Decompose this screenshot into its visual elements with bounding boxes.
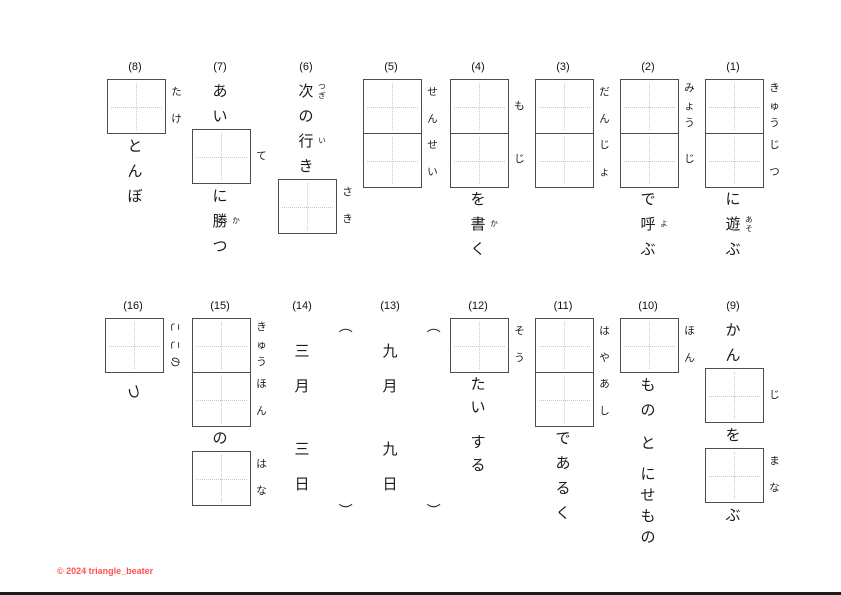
problem-number: (4) xyxy=(454,61,502,73)
kanji-writing-box[interactable] xyxy=(450,79,509,188)
kanji-writing-cell[interactable] xyxy=(536,80,593,133)
problem-text-char: に xyxy=(721,187,746,212)
problem-text-char: ぶ xyxy=(636,237,661,262)
furigana-reading: ょ xyxy=(597,166,613,178)
kanji-writing-box[interactable] xyxy=(363,79,422,188)
problem-text-char: 勝 xyxy=(208,209,233,234)
problem-number: (14) xyxy=(278,300,326,312)
problem-text-char: 月 xyxy=(290,369,315,404)
kanji-writing-box[interactable] xyxy=(450,318,509,373)
problem-number: (3) xyxy=(539,61,587,73)
furigana-reading: み xyxy=(682,82,698,94)
kanji-writing-box[interactable] xyxy=(535,79,594,188)
problem-text-char: も xyxy=(636,373,661,398)
furigana-reading: た xyxy=(169,86,185,98)
furigana-reading: も xyxy=(512,100,528,112)
furigana-ruby: つぎ xyxy=(317,79,327,104)
kanji-writing-cell[interactable] xyxy=(193,372,250,426)
problem-text-char: 三 xyxy=(290,334,315,369)
problem-text-char: る xyxy=(466,454,491,477)
furigana-reading: ょ xyxy=(682,100,698,112)
problem-text-char: に xyxy=(208,184,233,209)
furigana-ruby: い xyxy=(317,129,327,154)
problem-text-char: あ xyxy=(551,451,576,476)
kanji-writing-box[interactable] xyxy=(705,448,764,503)
problem-text-char: ん xyxy=(123,159,148,184)
kanji-writing-box[interactable] xyxy=(535,318,594,427)
worksheet-page: (1)きゅうじつに遊あそぶ(2)みょうじで呼よぶ(3)だんじょ(4)もじを書かく… xyxy=(0,0,841,595)
furigana-reading: ゅ xyxy=(254,339,270,351)
problem-text-char: と xyxy=(636,431,661,456)
problem-number: (5) xyxy=(367,61,415,73)
problem-number: (7) xyxy=(196,61,244,73)
problem-text-char: の xyxy=(208,426,233,451)
problem-text-char: と xyxy=(123,134,148,159)
problem-text-char: 呼 xyxy=(636,212,661,237)
kanji-writing-cell[interactable] xyxy=(106,319,163,372)
problem-text-char: 書 xyxy=(466,212,491,237)
furigana-reading: じ xyxy=(597,139,613,151)
kanji-writing-cell[interactable] xyxy=(536,372,593,426)
problem-text-char: の xyxy=(636,527,661,548)
problem-text-char: 日 xyxy=(290,467,315,502)
furigana-reading: そ xyxy=(512,325,528,337)
kanji-writing-box[interactable] xyxy=(192,318,251,427)
kanji-writing-cell[interactable] xyxy=(108,80,165,133)
problem-text-char: も xyxy=(636,506,661,527)
furigana-ruby: よ xyxy=(659,212,669,237)
furigana-reading: け xyxy=(169,113,185,125)
kanji-writing-box[interactable] xyxy=(192,451,251,506)
problem-text-char: 三 xyxy=(290,432,315,467)
kanji-writing-box[interactable] xyxy=(192,129,251,184)
furigana-reading: や xyxy=(597,352,613,364)
problem-text-char: る xyxy=(551,476,576,501)
kanji-writing-cell[interactable] xyxy=(364,133,421,187)
furigana-ruby: か xyxy=(231,209,241,234)
close-paren: ） xyxy=(336,503,352,517)
problem-text-char: ん xyxy=(721,343,746,368)
kanji-writing-cell[interactable] xyxy=(364,80,421,133)
kanji-writing-cell[interactable] xyxy=(706,449,763,502)
problem-text-char: の xyxy=(294,104,319,129)
furigana-reading: い xyxy=(425,166,441,178)
furigana-reading: じ xyxy=(512,153,528,165)
problem-text-char: い xyxy=(208,104,233,129)
kanji-writing-box[interactable] xyxy=(105,318,164,373)
furigana-reading: う xyxy=(254,356,270,368)
furigana-reading: だ xyxy=(597,86,613,98)
problem-text-char: つ xyxy=(208,234,233,259)
close-paren: ） xyxy=(424,503,440,517)
furigana-reading: あ xyxy=(597,378,613,390)
problem-number: (13) xyxy=(366,300,414,312)
furigana-reading: ん xyxy=(597,113,613,125)
problem-text-char: く xyxy=(466,237,491,262)
furigana-reading: き xyxy=(254,321,270,333)
problem-text-char: か xyxy=(721,318,746,343)
problem-text-char: の xyxy=(636,398,661,423)
problem-text-char: 行 xyxy=(294,129,319,154)
furigana-reading: ほ xyxy=(682,325,698,337)
kanji-writing-box[interactable] xyxy=(107,79,166,134)
problem-number: (10) xyxy=(624,300,672,312)
problem-number: (12) xyxy=(454,300,502,312)
problem-text-char: で xyxy=(551,426,576,451)
furigana-reading: ゅ xyxy=(767,100,783,112)
furigana-reading: う xyxy=(682,117,698,129)
problem-number: (8) xyxy=(111,61,159,73)
problem-text-char: に xyxy=(636,464,661,485)
kanji-writing-cell[interactable] xyxy=(536,133,593,187)
furigana-ruby: か xyxy=(489,212,499,237)
problem-text-char: 九 xyxy=(378,334,403,369)
furigana-reading: て xyxy=(254,150,270,162)
problem-text-char: あ xyxy=(208,79,233,104)
furigana-reading: ん xyxy=(425,113,441,125)
problem-number: (1) xyxy=(709,61,757,73)
open-paren: （ xyxy=(424,319,440,333)
problem-number: (15) xyxy=(196,300,244,312)
kanji-writing-cell[interactable] xyxy=(621,319,678,372)
problem-text-char: く xyxy=(551,501,576,526)
furigana-reading: ん xyxy=(254,405,270,417)
furigana-reading: の xyxy=(169,354,181,370)
problem-text-char: 九 xyxy=(378,432,403,467)
problem-text-char: ぶ xyxy=(721,237,746,262)
kanji-writing-box[interactable] xyxy=(705,368,764,423)
kanji-writing-cell[interactable] xyxy=(193,130,250,183)
kanji-writing-cell[interactable] xyxy=(621,80,678,133)
furigana-ruby: あそ xyxy=(744,212,754,237)
problem-text-char: い xyxy=(466,396,491,419)
furigana-reading: な xyxy=(254,485,270,497)
furigana-reading: き xyxy=(767,82,783,94)
problem-text-char: 月 xyxy=(378,369,403,404)
furigana-reading: な xyxy=(767,482,783,494)
open-paren: （ xyxy=(336,319,352,333)
problem-number: (9) xyxy=(709,300,757,312)
furigana-reading: き xyxy=(340,213,356,225)
problem-text-char: を xyxy=(466,187,491,212)
kanji-writing-box[interactable] xyxy=(620,318,679,373)
problem-text-char: ぼ xyxy=(123,184,148,209)
furigana-reading: は xyxy=(254,458,270,470)
problem-text-char: つ xyxy=(121,379,146,404)
kanji-writing-box[interactable] xyxy=(620,79,679,188)
problem-text-char: た xyxy=(466,373,491,396)
kanji-writing-cell[interactable] xyxy=(193,452,250,505)
kanji-writing-cell[interactable] xyxy=(706,80,763,133)
problem-number: (2) xyxy=(624,61,672,73)
kanji-writing-cell[interactable] xyxy=(193,319,250,372)
kanji-writing-cell[interactable] xyxy=(451,133,508,187)
kanji-writing-cell[interactable] xyxy=(621,133,678,187)
copyright-notice: © 2024 triangle_beater xyxy=(57,566,153,576)
problem-text-char: す xyxy=(466,431,491,454)
furigana-reading: じ xyxy=(767,389,783,401)
problem-number: (6) xyxy=(282,61,330,73)
furigana-reading: せ xyxy=(425,139,441,151)
kanji-writing-cell[interactable] xyxy=(451,319,508,372)
furigana-reading: は xyxy=(597,325,613,337)
kanji-writing-cell[interactable] xyxy=(706,369,763,422)
problem-text-char: 遊 xyxy=(721,212,746,237)
problem-text-char: 次 xyxy=(294,79,319,104)
problem-text-char: き xyxy=(294,154,319,179)
furigana-reading: せ xyxy=(425,86,441,98)
furigana-reading: さ xyxy=(340,186,356,198)
kanji-writing-cell[interactable] xyxy=(279,180,336,233)
furigana-reading: じ xyxy=(682,153,698,165)
furigana-reading: ま xyxy=(767,455,783,467)
problem-number: (16) xyxy=(109,300,157,312)
kanji-writing-cell[interactable] xyxy=(706,133,763,187)
furigana-reading: し xyxy=(597,405,613,417)
furigana-reading: ほ xyxy=(254,378,270,390)
furigana-reading: つ xyxy=(767,166,783,178)
problem-text-char: で xyxy=(636,187,661,212)
kanji-writing-cell[interactable] xyxy=(451,80,508,133)
furigana-reading: こ xyxy=(169,337,181,353)
problem-text-char: 日 xyxy=(378,467,403,502)
problem-text-char: ぶ xyxy=(721,503,746,528)
kanji-writing-box[interactable] xyxy=(278,179,337,234)
furigana-reading: ん xyxy=(682,352,698,364)
furigana-reading: こ xyxy=(169,319,181,335)
problem-text-char: せ xyxy=(636,485,661,506)
problem-text-char: を xyxy=(721,423,746,448)
furigana-reading: う xyxy=(767,117,783,129)
kanji-writing-cell[interactable] xyxy=(536,319,593,372)
kanji-writing-box[interactable] xyxy=(705,79,764,188)
furigana-reading: う xyxy=(512,352,528,364)
problem-number: (11) xyxy=(539,300,587,312)
furigana-reading: じ xyxy=(767,139,783,151)
